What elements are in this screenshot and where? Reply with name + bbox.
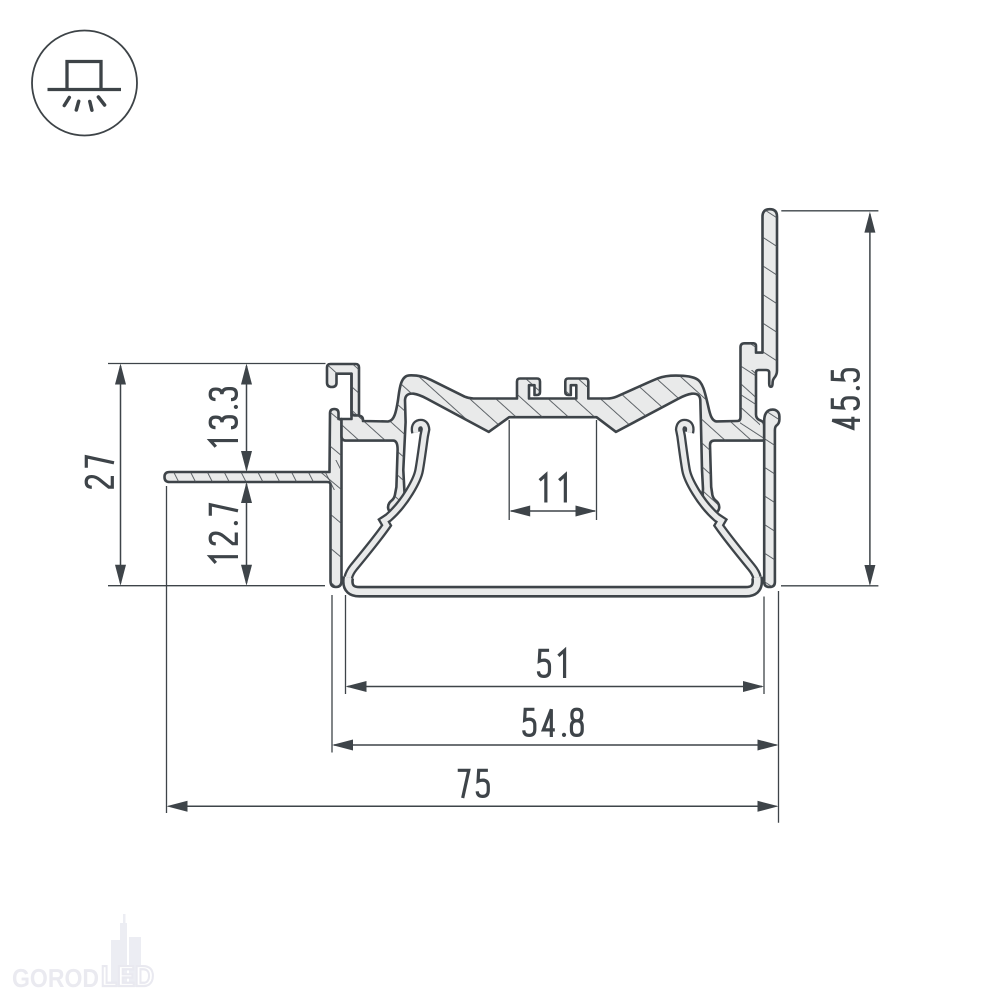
svg-text:GOROD: GOROD [12,963,99,993]
svg-text:LED: LED [101,961,154,993]
